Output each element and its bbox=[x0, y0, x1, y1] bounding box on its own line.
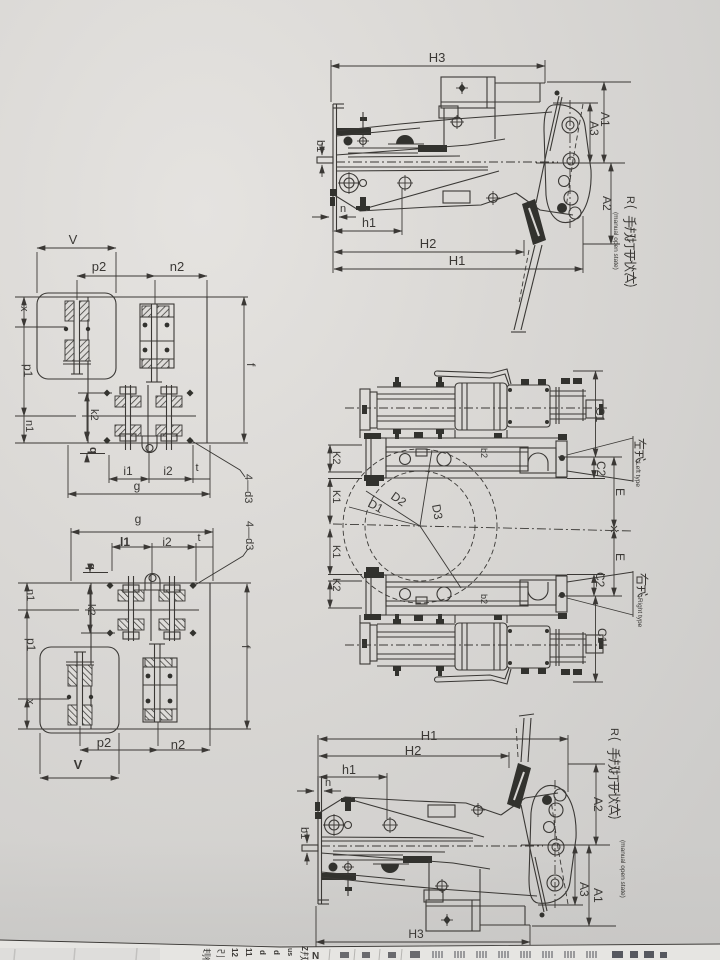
svg-text:A2: A2 bbox=[591, 797, 605, 812]
svg-text:p2: p2 bbox=[92, 259, 106, 274]
svg-text:p1: p1 bbox=[21, 364, 35, 378]
svg-text:g: g bbox=[134, 479, 141, 493]
svg-text:g: g bbox=[135, 512, 142, 526]
svg-text:x: x bbox=[18, 306, 30, 312]
svg-text:D3: D3 bbox=[429, 503, 446, 521]
svg-text:Z: Z bbox=[300, 946, 309, 951]
svg-text:b1: b1 bbox=[298, 827, 310, 839]
svg-text:t: t bbox=[195, 462, 198, 474]
svg-text:n: n bbox=[340, 203, 346, 215]
svg-text:K1: K1 bbox=[330, 545, 342, 558]
svg-text:K1: K1 bbox=[330, 490, 342, 503]
svg-text:4—d3: 4—d3 bbox=[242, 474, 254, 503]
svg-text:H2: H2 bbox=[405, 743, 422, 758]
svg-text:t: t bbox=[197, 532, 200, 544]
svg-text:q: q bbox=[87, 447, 99, 454]
svg-text:H1: H1 bbox=[449, 253, 466, 268]
svg-text:A1: A1 bbox=[591, 888, 605, 903]
svg-text:C2: C2 bbox=[594, 461, 608, 477]
svg-text:i1: i1 bbox=[123, 464, 133, 478]
svg-text:n1: n1 bbox=[23, 420, 35, 432]
svg-text:(manual open state): (manual open state) bbox=[619, 840, 626, 898]
svg-text:K2: K2 bbox=[330, 578, 342, 591]
svg-text:n2: n2 bbox=[171, 737, 185, 752]
svg-text:R: R bbox=[608, 728, 620, 736]
svg-text:k2: k2 bbox=[85, 604, 97, 616]
svg-text:11: 11 bbox=[244, 948, 253, 957]
svg-text:n: n bbox=[325, 777, 331, 789]
svg-text:Right type: Right type bbox=[636, 598, 643, 628]
svg-text:A3: A3 bbox=[577, 882, 591, 897]
svg-text:H3: H3 bbox=[408, 927, 424, 941]
svg-text:n1: n1 bbox=[24, 589, 36, 601]
svg-text:l1: l1 bbox=[120, 535, 130, 549]
svg-text:h1: h1 bbox=[362, 216, 376, 230]
svg-text:V: V bbox=[69, 232, 78, 247]
svg-text:H2: H2 bbox=[420, 236, 437, 251]
svg-text:N: N bbox=[312, 951, 319, 960]
svg-text:b2: b2 bbox=[479, 448, 489, 458]
svg-text:b1: b1 bbox=[314, 140, 326, 152]
svg-text:i2: i2 bbox=[162, 535, 172, 549]
svg-text:E: E bbox=[613, 553, 627, 561]
svg-text:d: d bbox=[258, 950, 267, 955]
svg-text:i2: i2 bbox=[163, 464, 173, 478]
svg-text:d: d bbox=[272, 950, 281, 955]
svg-text:n2: n2 bbox=[170, 259, 184, 274]
svg-text:b2: b2 bbox=[479, 594, 489, 604]
svg-text:C1: C1 bbox=[593, 407, 607, 423]
svg-text:us: us bbox=[286, 948, 293, 956]
svg-text:A2: A2 bbox=[600, 196, 614, 211]
svg-text:h1: h1 bbox=[342, 763, 356, 777]
svg-text:4—d3: 4—d3 bbox=[243, 521, 255, 550]
svg-text:(manual open state): (manual open state) bbox=[612, 212, 619, 270]
svg-text:C2: C2 bbox=[593, 572, 607, 588]
svg-text:V: V bbox=[74, 757, 83, 772]
svg-text:Left type: Left type bbox=[634, 462, 641, 487]
svg-text:E: E bbox=[613, 488, 627, 496]
svg-text:k2: k2 bbox=[88, 409, 100, 421]
svg-text:H1: H1 bbox=[421, 728, 438, 743]
svg-text:p1: p1 bbox=[24, 638, 38, 652]
svg-text:12: 12 bbox=[230, 948, 239, 957]
svg-text:R: R bbox=[624, 196, 636, 204]
svg-text:p2: p2 bbox=[97, 735, 111, 750]
svg-text:A3: A3 bbox=[587, 121, 601, 136]
svg-text:K2: K2 bbox=[330, 451, 342, 464]
svg-text:x: x bbox=[24, 699, 36, 705]
svg-text:H3: H3 bbox=[429, 50, 446, 65]
svg-text:q: q bbox=[85, 563, 97, 570]
svg-text:C1: C1 bbox=[595, 628, 609, 644]
